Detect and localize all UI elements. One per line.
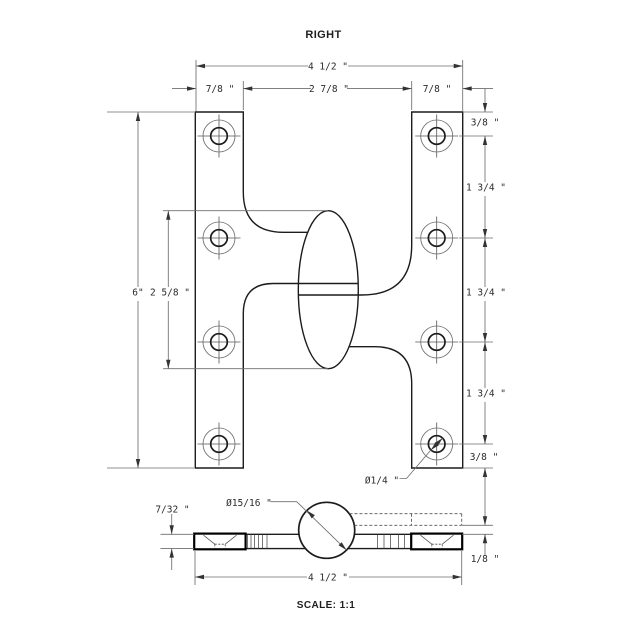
edge-right-leaf-section [411, 534, 462, 550]
dim-top-offset: 3/8 " [471, 118, 500, 129]
dim-overall-width-top: 4 1/2 " [308, 62, 348, 73]
countersink-profiles [204, 535, 454, 544]
edge-view [194, 502, 462, 558]
front-view [195, 112, 462, 468]
dim-hole-spacing-1: 1 3/4 " [466, 183, 506, 194]
dim-hole-spacing-2: 1 3/4 " [466, 288, 506, 299]
dim-leaf-offset: 1/8 " [471, 554, 500, 565]
knuckle-ellipse [298, 211, 358, 369]
right-leaf-outline [298, 112, 462, 468]
dim-bottom-offset: 3/8 " [470, 452, 499, 463]
drawing-sheet: RIGHT 4 1/2 " 7/8 " 2 7/8 " 7/8 " 3/8 " … [0, 0, 641, 641]
screw-hole-countersink-circles [203, 120, 453, 460]
dim-left-edge-distance: 7/8 " [206, 84, 235, 95]
edge-left-leaf-section [194, 534, 245, 550]
hidden-bore-lines [215, 544, 442, 548]
hinge-technical-drawing: RIGHT 4 1/2 " 7/8 " 2 7/8 " 7/8 " 3/8 " … [0, 0, 641, 641]
dim-hole-diameter: Ø1/4 " [365, 476, 399, 487]
view-title: RIGHT [305, 29, 341, 41]
dimension-arrows [136, 64, 487, 579]
offset-leaf-hidden-outline [350, 514, 462, 526]
dim-right-edge-distance: 7/8 " [423, 84, 452, 95]
screw-hole-bores [211, 128, 445, 453]
left-leaf-outline [195, 112, 358, 468]
dim-center-span: 2 7/8 " [309, 84, 349, 95]
dim-knuckle-height: 2 5/8 " [150, 288, 190, 299]
dim-leaf-thickness: 7/32 " [155, 505, 189, 516]
dim-hole-spacing-3: 1 3/4 " [466, 389, 506, 400]
dim-knuckle-diameter: Ø15/16 " [226, 498, 272, 509]
knuckle-transition-ticks [248, 535, 405, 548]
dim-overall-width-bottom: 4 1/2 " [308, 573, 348, 584]
scale-note: SCALE: 1:1 [297, 600, 355, 611]
edge-bar-outline [246, 534, 412, 548]
screw-hole-crosshairs [198, 115, 459, 466]
dim-overall-height: 6" [132, 288, 143, 299]
